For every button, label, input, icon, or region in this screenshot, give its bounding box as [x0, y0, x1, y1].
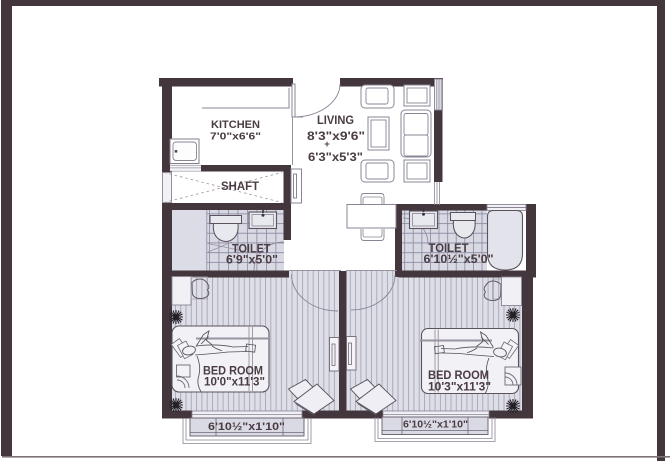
svg-text:LIVING: LIVING	[317, 113, 354, 127]
svg-text:10'3"x11'3": 10'3"x11'3"	[428, 382, 491, 394]
svg-text:6'9"x5'0": 6'9"x5'0"	[226, 253, 278, 267]
svg-text:6'10½"x5'0": 6'10½"x5'0"	[424, 252, 494, 266]
svg-text:7'0"x6'6": 7'0"x6'6"	[210, 131, 261, 143]
svg-text:10'0"x11'3": 10'0"x11'3"	[204, 377, 265, 389]
svg-text:BED ROOM: BED ROOM	[428, 370, 489, 382]
svg-text:8'3"x9'6": 8'3"x9'6"	[307, 129, 365, 143]
svg-text:6'3"x5'3": 6'3"x5'3"	[308, 150, 363, 164]
svg-text:6'10½"x1'10": 6'10½"x1'10"	[208, 421, 285, 433]
svg-text:KITCHEN: KITCHEN	[211, 119, 260, 131]
svg-text:6'10½"x1'10": 6'10½"x1'10"	[403, 419, 468, 431]
svg-text:SHAFT: SHAFT	[221, 179, 260, 193]
svg-text:+: +	[324, 139, 330, 150]
